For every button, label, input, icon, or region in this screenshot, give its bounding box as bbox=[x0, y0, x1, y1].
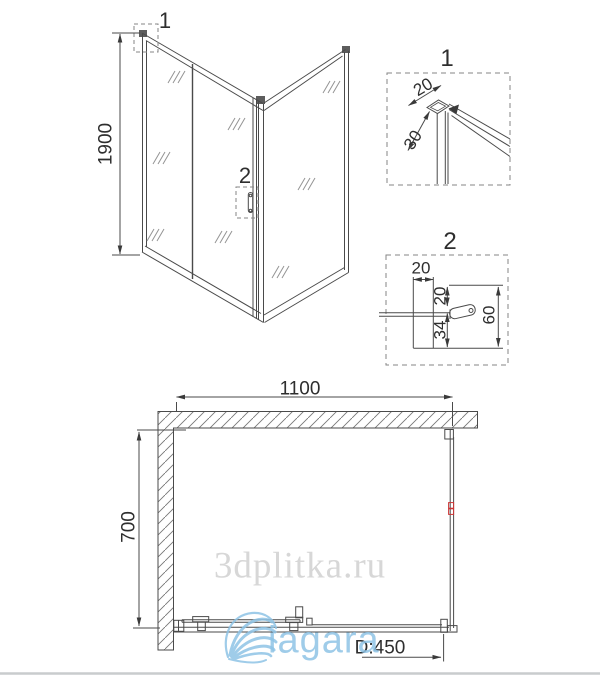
niagara-logo-text: iagara bbox=[268, 620, 380, 663]
niagara-logo-icon bbox=[0, 0, 600, 680]
shower-enclosure-technical-drawing: 3dplitka.ru bbox=[0, 0, 600, 680]
